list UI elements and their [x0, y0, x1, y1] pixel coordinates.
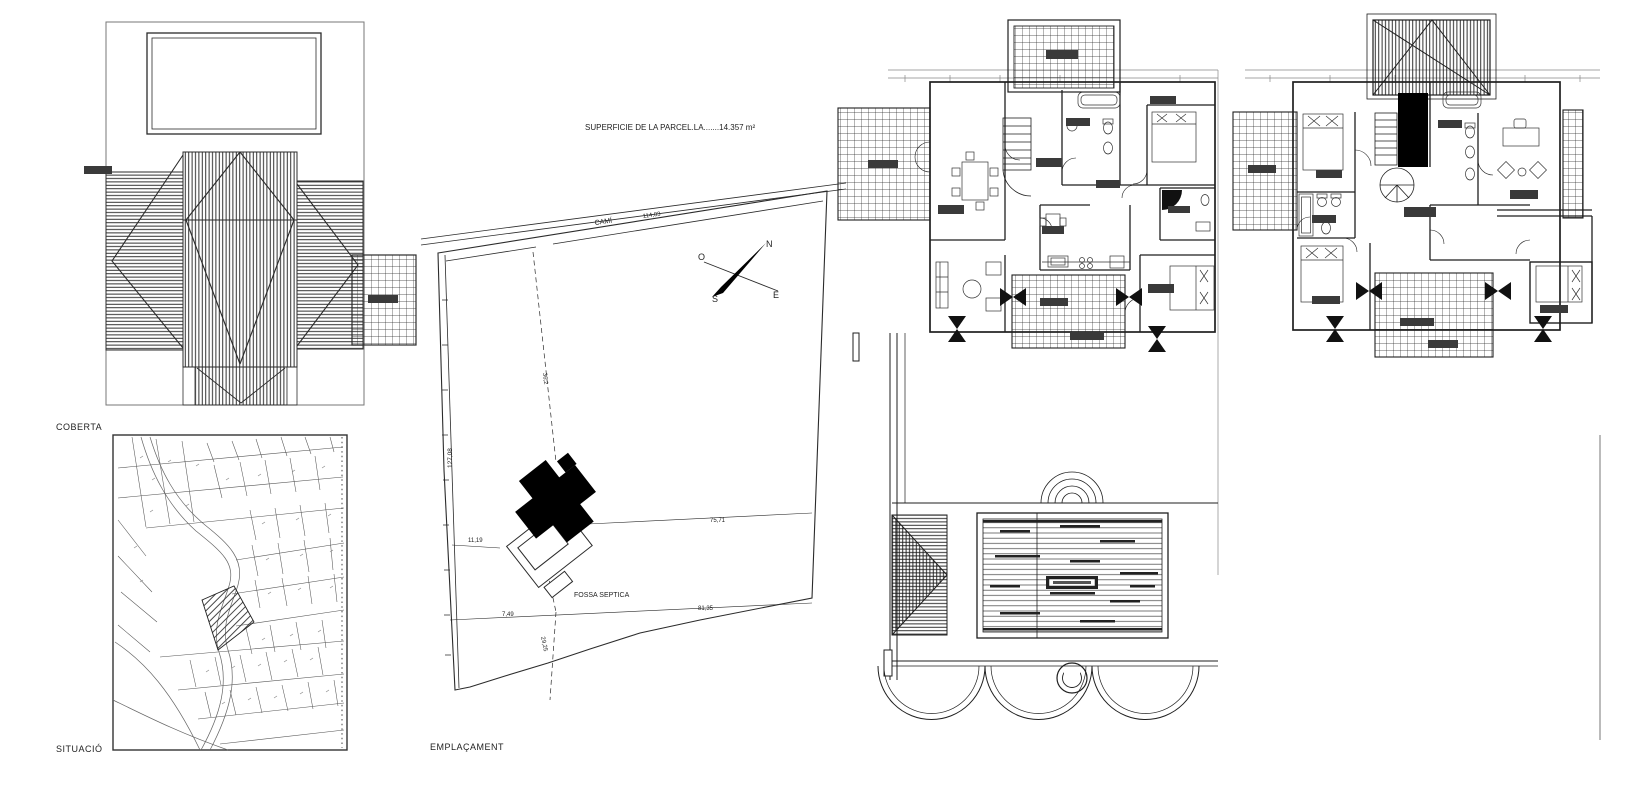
compass-south: S — [712, 294, 719, 304]
armchair — [986, 262, 1001, 275]
coffee-table — [963, 280, 981, 298]
dim-lower-cross: 81,35 — [698, 606, 714, 612]
dim-septic-offset: 7,49 — [502, 612, 514, 618]
compass-east: E — [773, 290, 780, 300]
toilet — [1466, 168, 1475, 180]
road-edge-lines — [421, 183, 846, 688]
dim-south-offset: 29,25 — [539, 636, 548, 653]
label-block — [84, 166, 112, 174]
dim-west-edge: 127,08 — [447, 448, 454, 468]
label-block — [1046, 50, 1078, 59]
arched-steps — [1041, 472, 1103, 503]
kitchen-counter — [1042, 256, 1130, 269]
drawing-canvas: COBERTA SITUACIÓ — [0, 0, 1632, 796]
bed-northwest — [1303, 114, 1343, 170]
bidet — [1104, 142, 1113, 154]
stairwell-void — [1398, 93, 1428, 167]
staircase — [1003, 118, 1031, 196]
septic-tank-label: FOSSA SEPTICA — [574, 592, 630, 599]
bathtub — [1299, 194, 1313, 236]
bed-northeast — [1152, 112, 1196, 162]
south-terrace-grid — [1012, 275, 1125, 348]
terrace-bottom-edge — [892, 661, 1218, 666]
upper-floor-plan — [1233, 14, 1600, 357]
bed-southwest — [1301, 246, 1343, 302]
ground-floor-plan — [838, 20, 1218, 575]
southeast-bedroom-walls — [1530, 262, 1592, 323]
bidet — [1466, 146, 1475, 158]
roof-hips — [106, 152, 363, 405]
washbasin — [1318, 198, 1327, 207]
fountain-ring — [1057, 663, 1087, 693]
dim-road-length: 114,03 — [642, 211, 661, 220]
site-plan — [421, 183, 846, 700]
dim-axis-length: 36,2 — [541, 373, 548, 386]
surface-note: SUPERFICIE DE LA PARCEL.LA.......14.357 … — [585, 123, 755, 132]
swimming-pool — [977, 513, 1168, 638]
architectural-drawing-sheet: COBERTA SITUACIÓ — [0, 0, 1632, 796]
label-block — [368, 295, 398, 303]
building-footprint — [480, 446, 623, 587]
dim-house-offset: 11,19 — [468, 538, 483, 544]
dining-table — [962, 162, 988, 200]
boundary-lines — [853, 333, 1600, 740]
study-desk — [1498, 119, 1547, 178]
bed-southeast — [1536, 266, 1582, 302]
situation-map-label: SITUACIÓ — [56, 744, 103, 754]
toilet — [1322, 222, 1331, 234]
east-terrace-grid — [1563, 110, 1583, 218]
sofa — [936, 262, 948, 308]
compass-needle — [712, 243, 766, 297]
parcel-boundary — [438, 191, 827, 690]
dim-upper-cross: 75,71 — [710, 518, 726, 524]
label-block — [868, 160, 898, 168]
terrace-plan — [853, 333, 1600, 740]
compass-rose — [704, 243, 778, 297]
bed-southeast — [1170, 266, 1214, 310]
interior-dimension-lines — [450, 513, 812, 620]
site-plan-label: EMPLAÇAMENT — [430, 742, 504, 752]
roof-flat-deck — [147, 33, 321, 134]
scalloped-border — [878, 666, 1199, 720]
entry-roof — [1367, 14, 1496, 99]
roof-plan — [84, 22, 416, 405]
washbasin — [1196, 222, 1210, 231]
compass-north: N — [766, 239, 773, 249]
roof-plan-label: COBERTA — [56, 422, 102, 432]
situation-map — [113, 435, 347, 750]
bathtub — [1078, 92, 1120, 108]
pergola-roof — [892, 515, 947, 635]
toilet — [1201, 195, 1209, 206]
compass-west: O — [698, 252, 706, 262]
